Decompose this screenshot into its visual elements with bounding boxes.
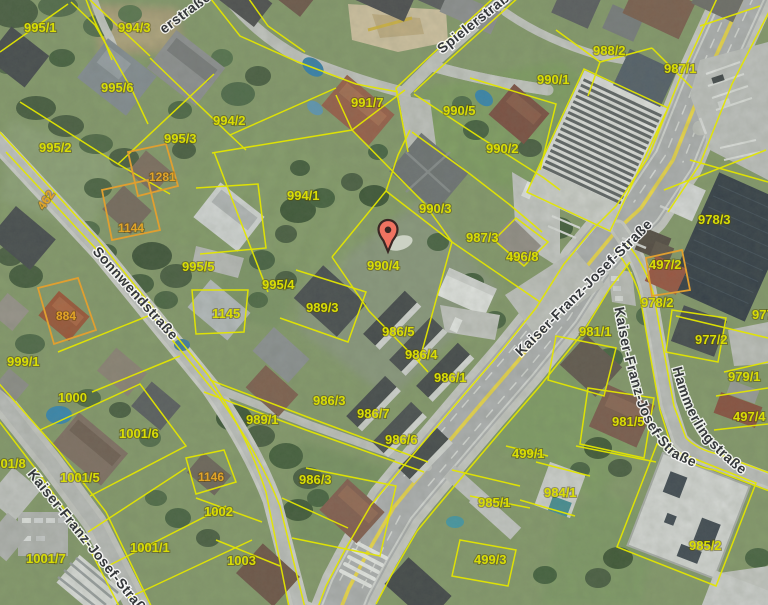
svg-text:497/2: 497/2 bbox=[649, 257, 682, 272]
svg-text:497/4: 497/4 bbox=[733, 409, 766, 424]
svg-text:986/1: 986/1 bbox=[434, 370, 467, 385]
svg-text:884: 884 bbox=[56, 309, 76, 323]
svg-text:986/5: 986/5 bbox=[382, 324, 415, 339]
svg-text:990/5: 990/5 bbox=[443, 103, 476, 118]
svg-text:1001/6: 1001/6 bbox=[119, 426, 159, 441]
svg-text:986/6: 986/6 bbox=[385, 432, 418, 447]
svg-text:995/3: 995/3 bbox=[164, 131, 197, 146]
svg-text:1001/1: 1001/1 bbox=[130, 540, 170, 555]
svg-text:1144: 1144 bbox=[118, 221, 144, 235]
svg-text:995/5: 995/5 bbox=[182, 259, 215, 274]
svg-text:978/2: 978/2 bbox=[641, 295, 674, 310]
svg-text:978/3: 978/3 bbox=[698, 212, 731, 227]
svg-text:985/2: 985/2 bbox=[689, 538, 722, 553]
svg-text:989/3: 989/3 bbox=[306, 300, 339, 315]
svg-text:981/1: 981/1 bbox=[579, 324, 612, 339]
svg-text:990/2: 990/2 bbox=[486, 141, 519, 156]
svg-text:1001/5: 1001/5 bbox=[60, 470, 100, 485]
svg-text:1003: 1003 bbox=[227, 553, 256, 568]
svg-text:1000: 1000 bbox=[58, 390, 87, 405]
svg-text:994/1: 994/1 bbox=[287, 188, 320, 203]
svg-text:995/1: 995/1 bbox=[24, 20, 57, 35]
svg-text:1281: 1281 bbox=[149, 170, 176, 184]
svg-text:990/4: 990/4 bbox=[367, 258, 400, 273]
svg-text:496/8: 496/8 bbox=[506, 249, 539, 264]
svg-text:984/1: 984/1 bbox=[544, 485, 577, 500]
svg-text:1001/7: 1001/7 bbox=[26, 551, 66, 566]
svg-text:995/2: 995/2 bbox=[39, 140, 72, 155]
svg-text:1146: 1146 bbox=[198, 470, 224, 484]
svg-text:986/7: 986/7 bbox=[357, 406, 390, 421]
svg-text:995/4: 995/4 bbox=[262, 277, 295, 292]
svg-text:989/1: 989/1 bbox=[246, 412, 279, 427]
svg-text:499/1: 499/1 bbox=[512, 446, 545, 461]
svg-text:988/2: 988/2 bbox=[593, 43, 626, 58]
svg-text:994/2: 994/2 bbox=[213, 113, 246, 128]
svg-text:986/3: 986/3 bbox=[313, 393, 346, 408]
svg-text:1001/8: 1001/8 bbox=[0, 456, 26, 471]
svg-text:986/4: 986/4 bbox=[405, 347, 438, 362]
svg-text:994/3: 994/3 bbox=[118, 20, 151, 35]
svg-text:977: 977 bbox=[752, 307, 768, 322]
svg-text:986/3: 986/3 bbox=[299, 472, 332, 487]
svg-text:499/3: 499/3 bbox=[474, 552, 507, 567]
svg-text:979/1: 979/1 bbox=[728, 369, 761, 384]
svg-text:991/7: 991/7 bbox=[351, 95, 384, 110]
svg-text:1145: 1145 bbox=[212, 306, 240, 321]
svg-text:990/3: 990/3 bbox=[419, 201, 452, 216]
svg-text:977/2: 977/2 bbox=[695, 332, 728, 347]
svg-text:1002: 1002 bbox=[204, 504, 233, 519]
svg-text:995/6: 995/6 bbox=[101, 80, 134, 95]
svg-text:990/1: 990/1 bbox=[537, 72, 570, 87]
svg-text:987/1: 987/1 bbox=[664, 61, 697, 76]
svg-text:999/1: 999/1 bbox=[7, 354, 40, 369]
svg-text:985/1: 985/1 bbox=[478, 495, 511, 510]
svg-text:987/3: 987/3 bbox=[466, 230, 499, 245]
